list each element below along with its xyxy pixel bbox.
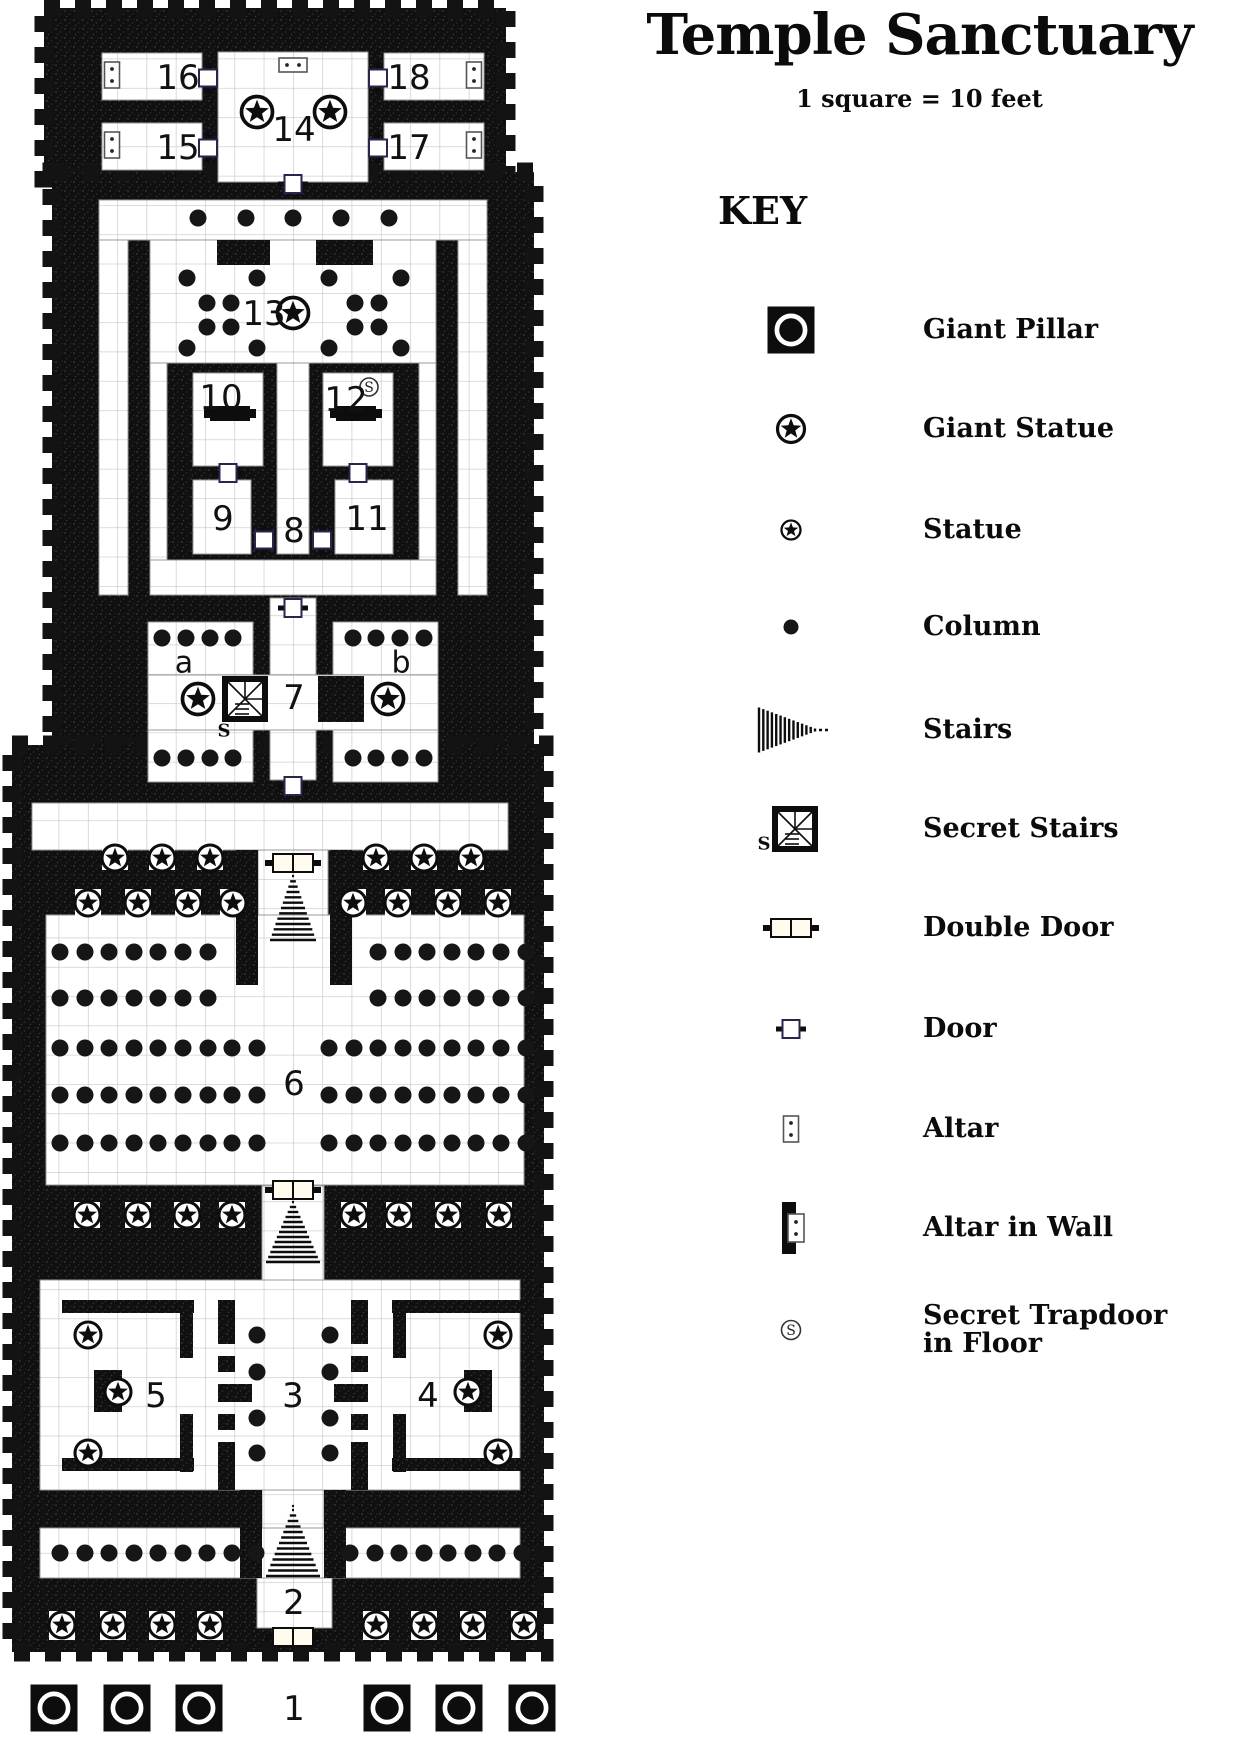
key-item-statue: Statue (600, 495, 1239, 565)
column-icon (322, 1364, 339, 1381)
statue-icon (363, 845, 389, 871)
room-label: 12 (324, 380, 367, 420)
column-icon (444, 944, 461, 961)
key-item-label: Giant Statue (923, 394, 1114, 464)
statue-icon (100, 1612, 126, 1638)
statue-icon (49, 1612, 75, 1638)
column-icon (370, 944, 387, 961)
statue-icon (74, 1202, 100, 1228)
statue-icon (175, 890, 201, 916)
column-icon (518, 1040, 535, 1057)
room-label: 15 (156, 128, 199, 168)
column-icon (322, 1410, 339, 1427)
key-item-column: Column (600, 592, 1239, 662)
inner-wall (351, 1414, 368, 1430)
altar-in-wall-icon (279, 58, 307, 72)
column-icon (101, 1040, 118, 1057)
column-icon (392, 630, 409, 647)
inner-wall (334, 1384, 368, 1402)
column-icon (468, 1087, 485, 1104)
altar-icon (105, 132, 120, 158)
key-item-label: Double Door (923, 893, 1113, 963)
column-icon (101, 1135, 118, 1152)
inner-wall (351, 1356, 368, 1372)
giant-statue-icon (315, 97, 346, 128)
room-label: 8 (283, 511, 305, 551)
altar-block (250, 409, 256, 418)
column-icon (175, 944, 192, 961)
statue-icon (125, 890, 151, 916)
inner-wall (330, 850, 352, 985)
column-icon (52, 1135, 69, 1152)
key-item-label: Secret Stairs (923, 794, 1119, 864)
svg-text:S: S (758, 834, 771, 855)
scale-note: 1 square = 10 feet (600, 84, 1239, 113)
column-icon (200, 1135, 217, 1152)
giant-pillar-icon (364, 1685, 411, 1732)
column-icon (77, 1545, 94, 1562)
room-label: 9 (212, 499, 234, 539)
room-label: 13 (242, 294, 285, 334)
column-icon (489, 1545, 506, 1562)
giant-pillar-icon (768, 307, 815, 354)
room-label: 2 (283, 1583, 305, 1623)
column-icon (175, 1040, 192, 1057)
column-icon (518, 990, 535, 1007)
key-item-giant-statue: Giant Statue (600, 394, 1239, 464)
key-item-label: Altar in Wall (923, 1193, 1113, 1263)
double-door-icon (265, 1628, 321, 1646)
column-icon (126, 1545, 143, 1562)
statue-icon (386, 1202, 412, 1228)
column-icon (200, 990, 217, 1007)
statue-icon (746, 495, 836, 565)
column-icon (126, 990, 143, 1007)
statue-icon (149, 1612, 175, 1638)
floor (419, 363, 436, 560)
column-icon (249, 1135, 266, 1152)
column-icon (52, 944, 69, 961)
column-icon (381, 210, 398, 227)
column-icon (285, 210, 302, 227)
statue-icon (220, 890, 246, 916)
column-icon (126, 1087, 143, 1104)
statue-icon (485, 1440, 511, 1466)
column-icon (199, 319, 216, 336)
column-icon (346, 1135, 363, 1152)
column-icon (440, 1545, 457, 1562)
column-icon (493, 944, 510, 961)
column-icon (419, 944, 436, 961)
room-label: 6 (283, 1064, 305, 1104)
column-icon (77, 944, 94, 961)
statue-icon (435, 1202, 461, 1228)
room-label: b (391, 646, 410, 681)
giant-pillar-icon (176, 1685, 223, 1732)
column-icon (444, 1135, 461, 1152)
statue-icon (458, 845, 484, 871)
inner-wall (392, 1300, 524, 1313)
column-icon (345, 630, 362, 647)
statue-icon (102, 845, 128, 871)
column-icon (419, 1087, 436, 1104)
door-icon (746, 994, 836, 1064)
column-icon (249, 340, 266, 357)
inner-wall (393, 1300, 406, 1358)
statue-icon (75, 1440, 101, 1466)
giant-pillar-icon (436, 1685, 483, 1732)
column-icon (371, 319, 388, 336)
column-icon (419, 1135, 436, 1152)
statue-icon (485, 1322, 511, 1348)
inner-wall (318, 676, 364, 722)
column-icon (199, 1545, 216, 1562)
column-icon (179, 340, 196, 357)
column-icon (202, 630, 219, 647)
statue-icon (340, 890, 366, 916)
room-label: 17 (387, 128, 430, 168)
key-item-stairs: Stairs (600, 695, 1239, 765)
altar-icon (467, 132, 482, 158)
column-icon (52, 1545, 69, 1562)
column-icon (225, 630, 242, 647)
column-icon (101, 1545, 118, 1562)
statue-icon (486, 1202, 512, 1228)
inner-wall (218, 1414, 235, 1430)
column-icon (518, 1135, 535, 1152)
column-icon (444, 1040, 461, 1057)
column-icon (77, 1040, 94, 1057)
statue-icon (455, 1379, 481, 1405)
column-icon (322, 1445, 339, 1462)
column-icon (368, 750, 385, 767)
column-icon (493, 1040, 510, 1057)
inner-wall (240, 1490, 262, 1578)
key-item-secret-stairs: SSecret Stairs (600, 794, 1239, 864)
key-item-label: Door (923, 994, 997, 1064)
key-item-giant-pillar: Giant Pillar (600, 295, 1239, 365)
statue-icon (341, 1202, 367, 1228)
column-icon (126, 1135, 143, 1152)
statue-icon (149, 845, 175, 871)
inner-wall (218, 1442, 235, 1490)
floor (150, 560, 436, 595)
giant-statue-icon (778, 416, 805, 443)
svg-text:S: S (218, 721, 231, 742)
statue-icon (511, 1612, 537, 1638)
column-icon (190, 210, 207, 227)
column-icon (178, 750, 195, 767)
inner-wall (316, 240, 373, 265)
column-icon (468, 944, 485, 961)
column-icon (346, 1087, 363, 1104)
column-icon (518, 944, 535, 961)
altar-icon (746, 1094, 836, 1164)
column-icon (175, 1135, 192, 1152)
column-icon (321, 1087, 338, 1104)
column-icon (416, 750, 433, 767)
giant-statue-icon (183, 684, 214, 715)
column-icon (52, 990, 69, 1007)
column-icon (493, 1135, 510, 1152)
statue-icon (385, 890, 411, 916)
column-icon (367, 1545, 384, 1562)
giant-statue-icon (242, 97, 273, 128)
column-icon (395, 1135, 412, 1152)
giant-pillar-icon (509, 1685, 556, 1732)
altar-in-wall-icon (746, 1193, 836, 1263)
stairs-icon (759, 708, 829, 753)
room-label: 3 (282, 1376, 304, 1416)
statue-icon (782, 521, 801, 540)
column-icon (347, 319, 364, 336)
double-door-icon (265, 1181, 321, 1199)
key-item-door: Door (600, 994, 1239, 1064)
column-icon (347, 295, 364, 312)
inner-wall (218, 1384, 252, 1402)
altar-block (376, 409, 382, 418)
inner-wall (351, 1442, 368, 1490)
inner-wall (218, 1356, 235, 1372)
statue-icon (460, 1612, 486, 1638)
secret-stairs-icon: S (746, 794, 836, 864)
column-icon (224, 1545, 241, 1562)
column-icon (346, 1040, 363, 1057)
room-label: 16 (156, 58, 199, 98)
column-icon (101, 944, 118, 961)
column-icon (391, 1545, 408, 1562)
column-icon (321, 1135, 338, 1152)
key-item-secret-trapdoor: SSecret Trapdoorin Floor (600, 1295, 1239, 1365)
column-icon (178, 630, 195, 647)
column-icon (370, 1087, 387, 1104)
column-icon (444, 990, 461, 1007)
giant-statue-icon (373, 684, 404, 715)
column-icon (395, 1087, 412, 1104)
key-item-double-door: Double Door (600, 893, 1239, 963)
column-icon (746, 592, 836, 662)
inner-wall (180, 1300, 193, 1358)
inner-wall (217, 240, 270, 265)
room-label: 18 (387, 58, 430, 98)
key-panel: Temple Sanctuary 1 square = 10 feet KEY … (600, 0, 1239, 1736)
room-label: 11 (345, 499, 388, 539)
floor (270, 730, 316, 780)
column-icon (371, 295, 388, 312)
key-item-label: Secret Trapdoorin Floor (923, 1295, 1167, 1365)
column-icon (224, 1087, 241, 1104)
altar-icon (467, 62, 482, 88)
column-icon (345, 750, 362, 767)
column-icon (150, 1040, 167, 1057)
column-icon (154, 630, 171, 647)
column-icon (150, 1545, 167, 1562)
column-icon (199, 295, 216, 312)
inner-wall (236, 850, 258, 985)
column-icon (419, 990, 436, 1007)
statue-icon (75, 1322, 101, 1348)
column-icon (101, 990, 118, 1007)
column-icon (223, 295, 240, 312)
inner-wall (324, 1490, 346, 1578)
floor (458, 240, 487, 595)
key-item-label: Statue (923, 495, 1022, 565)
column-icon (200, 1087, 217, 1104)
statue-icon (197, 845, 223, 871)
column-icon (518, 1087, 535, 1104)
door-icon (776, 1020, 806, 1038)
key-item-label: Altar (923, 1094, 998, 1164)
room-label: 7 (283, 678, 305, 718)
column-icon (321, 1040, 338, 1057)
column-icon (225, 750, 242, 767)
column-icon (333, 210, 350, 227)
column-icon (175, 1545, 192, 1562)
column-icon (468, 1040, 485, 1057)
giant-pillar-icon (31, 1685, 78, 1732)
column-icon (249, 1087, 266, 1104)
column-icon (175, 990, 192, 1007)
room-label: 5 (145, 1376, 167, 1416)
column-icon (77, 1087, 94, 1104)
statue-icon (105, 1379, 131, 1405)
column-icon (493, 1087, 510, 1104)
altar-in-wall-icon (782, 1202, 804, 1254)
statue-icon (411, 845, 437, 871)
column-icon (370, 990, 387, 1007)
column-icon (419, 1040, 436, 1057)
column-icon (126, 944, 143, 961)
column-icon (175, 1087, 192, 1104)
column-icon (200, 1040, 217, 1057)
statue-icon (75, 890, 101, 916)
column-icon (416, 1545, 433, 1562)
column-icon (370, 1135, 387, 1152)
key-item-altar: Altar (600, 1094, 1239, 1164)
giant-pillar-icon (104, 1685, 151, 1732)
inner-wall (180, 1414, 193, 1472)
statue-icon (435, 890, 461, 916)
column-icon (223, 319, 240, 336)
inner-wall (351, 1300, 368, 1344)
room-label: 1 (283, 1689, 305, 1729)
double-door-icon (763, 919, 819, 937)
column-icon (322, 1327, 339, 1344)
column-icon (784, 620, 799, 635)
column-icon (468, 990, 485, 1007)
key-item-label: Giant Pillar (923, 295, 1098, 365)
column-icon (465, 1545, 482, 1562)
column-icon (321, 340, 338, 357)
giant-statue-icon (746, 394, 836, 464)
giant-pillar-icon (746, 295, 836, 365)
temple-map: SS161518171413101298117ab653421 (0, 0, 600, 1736)
column-icon (370, 1040, 387, 1057)
column-icon (249, 1364, 266, 1381)
column-icon (249, 270, 266, 287)
svg-text:S: S (786, 1323, 796, 1339)
column-icon (468, 1135, 485, 1152)
column-icon (52, 1040, 69, 1057)
key-heading: KEY (718, 188, 807, 233)
column-icon (368, 630, 385, 647)
floor (150, 363, 167, 560)
statue-icon (197, 1612, 223, 1638)
key-item-label: Column (923, 592, 1041, 662)
statue-icon (219, 1202, 245, 1228)
statue-icon (125, 1202, 151, 1228)
column-icon (77, 990, 94, 1007)
column-icon (101, 1087, 118, 1104)
room-label: 4 (417, 1376, 439, 1416)
inner-wall (393, 1414, 406, 1472)
column-icon (150, 944, 167, 961)
double-door-icon (265, 854, 321, 872)
column-icon (52, 1087, 69, 1104)
column-icon (395, 990, 412, 1007)
altar-icon (105, 62, 120, 88)
column-icon (224, 1135, 241, 1152)
column-icon (393, 270, 410, 287)
statue-icon (411, 1612, 437, 1638)
column-icon (342, 1545, 359, 1562)
key-item-altar-in-wall: Altar in Wall (600, 1193, 1239, 1263)
column-icon (150, 1135, 167, 1152)
secret-trapdoor-icon: S (782, 1321, 801, 1340)
column-icon (224, 1040, 241, 1057)
floor (99, 240, 128, 595)
inner-wall (62, 1300, 194, 1313)
column-icon (150, 990, 167, 1007)
column-icon (248, 1545, 265, 1562)
secret-stairs-icon: S (758, 806, 819, 855)
key-item-label: Stairs (923, 695, 1012, 765)
statue-icon (363, 1612, 389, 1638)
column-icon (514, 1545, 531, 1562)
statue-icon (485, 890, 511, 916)
room-label: a (175, 646, 193, 681)
double-door-icon (746, 893, 836, 963)
column-icon (202, 750, 219, 767)
column-icon (249, 1410, 266, 1427)
stairs-icon (746, 695, 836, 765)
column-icon (249, 1327, 266, 1344)
page-title: Temple Sanctuary (600, 2, 1239, 68)
column-icon (493, 990, 510, 1007)
column-icon (249, 1445, 266, 1462)
room-label: 14 (272, 110, 315, 150)
column-icon (444, 1087, 461, 1104)
room-label: 10 (199, 378, 242, 418)
column-icon (200, 944, 217, 961)
column-icon (179, 270, 196, 287)
altar-icon (784, 1116, 799, 1142)
column-icon (395, 944, 412, 961)
column-icon (392, 750, 409, 767)
column-icon (126, 1040, 143, 1057)
inner-wall (218, 1300, 235, 1344)
column-icon (77, 1135, 94, 1152)
column-icon (393, 340, 410, 357)
column-icon (395, 1040, 412, 1057)
secret-trapdoor-icon: S (746, 1295, 836, 1365)
column-icon (321, 270, 338, 287)
statue-icon (174, 1202, 200, 1228)
column-icon (154, 750, 171, 767)
column-icon (150, 1087, 167, 1104)
column-icon (416, 630, 433, 647)
column-icon (249, 1040, 266, 1057)
